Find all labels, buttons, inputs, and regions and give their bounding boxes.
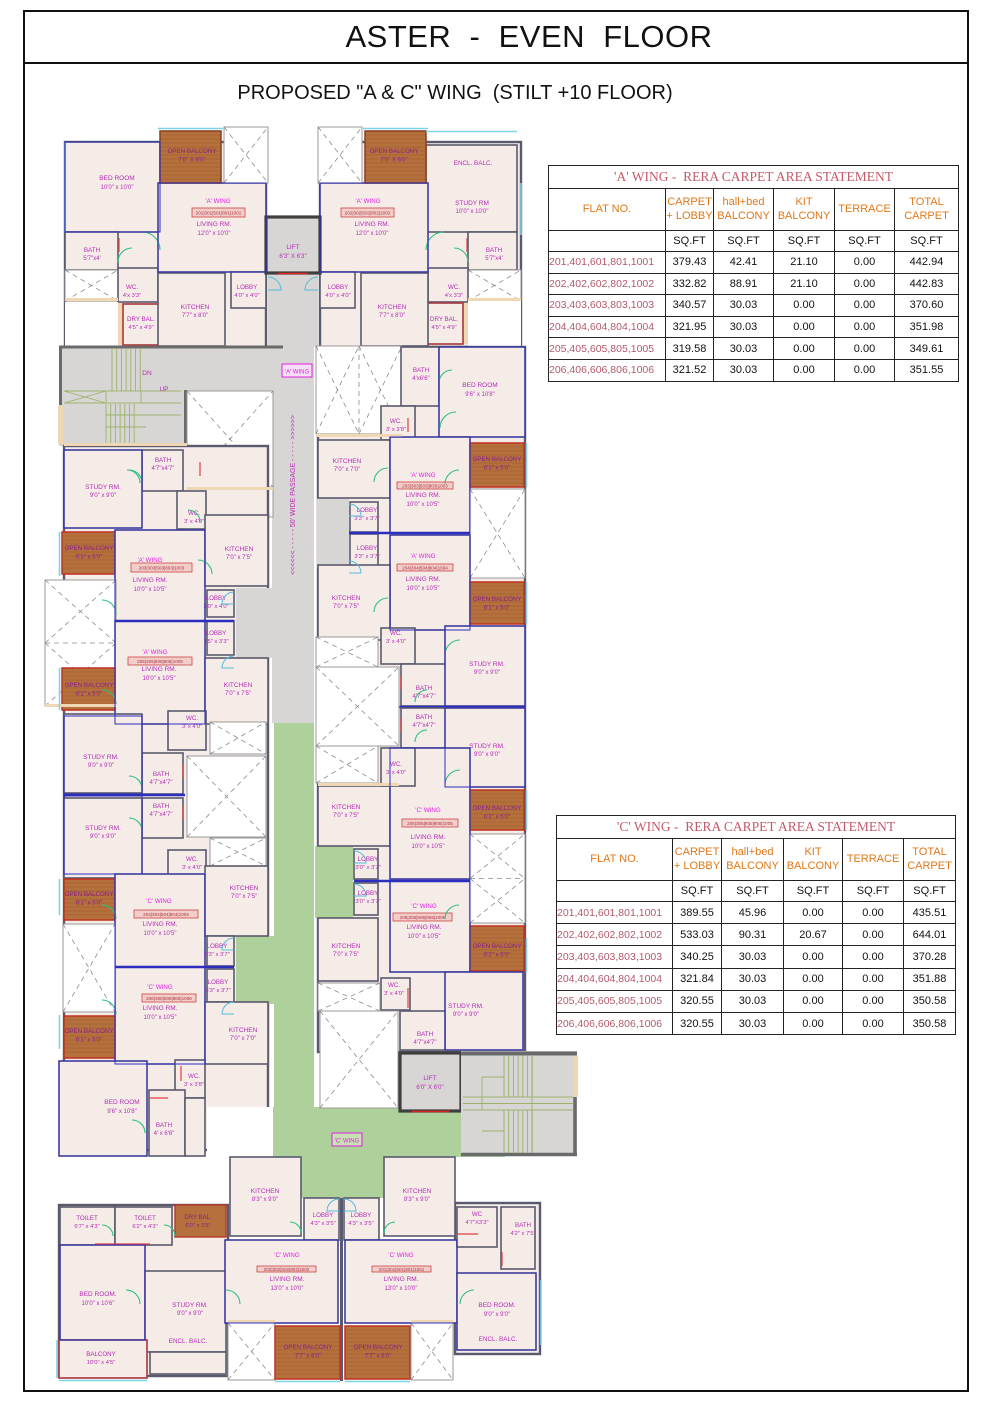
svg-text:3'0" x 4'0": 3'0" x 4'0": [203, 604, 228, 610]
svg-text:3' x 4'0": 3' x 4'0": [386, 770, 406, 776]
svg-text:STUDY RM.: STUDY RM.: [85, 825, 121, 832]
svg-text:WC.: WC.: [390, 418, 402, 425]
svg-text:'C' WING: 'C' WING: [335, 1139, 360, 1145]
svg-text:LOBBY: LOBBY: [207, 943, 228, 950]
svg-text:BED ROOM: BED ROOM: [462, 382, 497, 389]
svg-text:BATH: BATH: [417, 1031, 434, 1038]
svg-text:BED ROOM.: BED ROOM.: [478, 1302, 515, 1309]
svg-text:6'3" X 6'3": 6'3" X 6'3": [279, 254, 306, 260]
svg-text:LOBBY: LOBBY: [358, 856, 379, 863]
svg-text:'A' WING: 'A' WING: [142, 649, 167, 656]
svg-text:LOBBY: LOBBY: [313, 1212, 334, 1219]
svg-text:12'0" x 10'0": 12'0" x 10'0": [198, 231, 231, 237]
svg-text:STUDY RM.: STUDY RM.: [85, 484, 121, 491]
svg-text:3' x 4'0": 3' x 4'0": [184, 519, 204, 525]
svg-text:3'3" x 3'7": 3'3" x 3'7": [354, 554, 379, 560]
svg-text:7'0" x 7'0": 7'0" x 7'0": [334, 467, 360, 473]
svg-text:6'1" x 5'0": 6'1" x 5'0": [484, 605, 510, 611]
svg-text:12'0" x 10'0": 12'0" x 10'0": [356, 231, 389, 237]
svg-text:7'7" x 6'0": 7'7" x 6'0": [365, 1353, 391, 1359]
svg-text:9'0" x 9'0": 9'0" x 9'0": [90, 493, 116, 499]
svg-text:BATH: BATH: [416, 685, 433, 692]
svg-text:BATH: BATH: [84, 247, 101, 254]
svg-text:'C' WING: 'C' WING: [147, 984, 173, 991]
svg-text:BATH: BATH: [155, 457, 172, 464]
svg-text:'C' WING: 'C' WING: [274, 1252, 300, 1259]
svg-text:7'0" x 7'5": 7'0" x 7'5": [333, 813, 359, 819]
svg-text:LIVING RM.: LIVING RM.: [406, 924, 441, 931]
svg-text:LOBBY: LOBBY: [206, 630, 227, 637]
svg-text:OPEN BALCONY: OPEN BALCONY: [65, 682, 114, 689]
svg-text:9'0" x 9'0": 9'0" x 9'0": [177, 1311, 203, 1317]
svg-text:10'0" x 10'5": 10'0" x 10'5": [407, 586, 440, 592]
svg-text:205|305|505|805|1005: 205|305|505|805|1005: [137, 659, 183, 664]
svg-text:'C' WING: 'C' WING: [415, 807, 441, 814]
svg-text:4'2" x 7'5": 4'2" x 7'5": [510, 1231, 535, 1237]
svg-text:10'0" x 10'5": 10'0" x 10'5": [412, 844, 445, 850]
svg-text:ENCL. BALC.: ENCL. BALC.: [169, 1338, 208, 1345]
svg-text:LIVING RM.: LIVING RM.: [410, 834, 445, 841]
svg-text:4'5" x 4'9": 4'5" x 4'9": [128, 325, 153, 331]
svg-text:6'2" x 4'3": 6'2" x 4'3": [132, 1224, 157, 1230]
svg-text:OPEN BALCONY: OPEN BALCONY: [65, 891, 114, 898]
svg-text:LIVING RM.: LIVING RM.: [405, 576, 440, 583]
svg-text:201|301|501|801|1001: 201|301|501|801|1001: [379, 1267, 425, 1272]
svg-text:205|305|505|805|1005: 205|305|505|805|1005: [407, 821, 453, 826]
svg-text:LIVING RM.: LIVING RM.: [196, 221, 231, 228]
svg-text:KITCHEN: KITCHEN: [332, 943, 361, 950]
svg-text:10'0" x 10'5": 10'0" x 10'5": [143, 676, 176, 682]
svg-text:10'0" x 10'5": 10'0" x 10'5": [144, 931, 177, 937]
svg-text:203|303|503|803|1003: 203|303|503|803|1003: [402, 483, 448, 488]
svg-text:3' x 3'8": 3' x 3'8": [184, 1082, 204, 1088]
svg-text:OPEN BALCONY: OPEN BALCONY: [168, 148, 217, 155]
svg-text:10'0" x 10'5": 10'0" x 10'5": [144, 1015, 177, 1021]
svg-text:LIVING RM.: LIVING RM.: [142, 921, 177, 928]
svg-text:DN: DN: [142, 370, 152, 377]
svg-text:5'7"x4': 5'7"x4': [83, 256, 100, 262]
svg-text:3' x 4'0": 3' x 4'0": [384, 991, 404, 997]
svg-text:4'7"x4'7": 4'7"x4'7": [152, 466, 175, 472]
svg-text:7'0" X 6'0": 7'0" X 6'0": [178, 157, 205, 163]
svg-text:9'0" x 9'0": 9'0" x 9'0": [90, 834, 116, 840]
svg-text:STUDY RM.: STUDY RM.: [469, 743, 505, 750]
svg-text:13'0" x 10'0": 13'0" x 10'0": [271, 1286, 304, 1292]
svg-text:WC.: WC.: [390, 630, 402, 637]
svg-text:3'0" x 3'7": 3'0" x 3'7": [355, 865, 380, 871]
svg-text:10'0" x 10'5": 10'0" x 10'5": [408, 934, 441, 940]
svg-text:3'3" x 3'7": 3'3" x 3'7": [204, 952, 229, 958]
svg-text:7'0" x 7'5": 7'0" x 7'5": [226, 555, 252, 561]
svg-text:3'0" x 3'7": 3'0" x 3'7": [355, 899, 380, 905]
svg-text:9'0" x 9'0": 9'0" x 9'0": [484, 1312, 510, 1318]
svg-text:4' x 6'6": 4' x 6'6": [154, 1131, 175, 1137]
svg-text:7'7" x 8'0": 7'7" x 8'0": [379, 313, 405, 319]
svg-text:OPEN BALCONY: OPEN BALCONY: [473, 456, 522, 463]
svg-text:6'1" x 5'0": 6'1" x 5'0": [76, 554, 102, 560]
svg-text:KITCHEN: KITCHEN: [332, 595, 361, 602]
svg-text:10'0" x 10'5": 10'0" x 10'5": [407, 502, 440, 508]
svg-text:3' x 3'8": 3' x 3'8": [386, 427, 406, 433]
svg-text:BATH: BATH: [515, 1222, 531, 1229]
svg-text:ENCL. BALC.: ENCL. BALC.: [454, 160, 493, 167]
svg-text:BATH: BATH: [416, 714, 433, 721]
svg-text:BATH: BATH: [156, 1122, 173, 1129]
svg-text:204|304|504|804|1004: 204|304|504|804|1004: [402, 565, 448, 570]
svg-text:4'7"x4'7": 4'7"x4'7": [413, 723, 436, 729]
svg-text:6'2" x 5'0": 6'2" x 5'0": [484, 814, 510, 820]
svg-text:3'3" x 3'7": 3'3" x 3'7": [205, 988, 230, 994]
svg-text:OPEN BALCONY: OPEN BALCONY: [65, 545, 114, 552]
svg-text:7'7" x 8'0": 7'7" x 8'0": [182, 313, 208, 319]
svg-text:9'0" x 9'0": 9'0" x 9'0": [474, 670, 500, 676]
svg-text:7'7" x 6'0": 7'7" x 6'0": [295, 1353, 321, 1359]
svg-text:DRY BAL.: DRY BAL.: [184, 1215, 211, 1221]
svg-text:6'2" x 5'0": 6'2" x 5'0": [484, 952, 510, 958]
svg-text:LOBBY: LOBBY: [351, 1212, 372, 1219]
svg-text:STUDY RM.: STUDY RM.: [83, 754, 119, 761]
svg-text:'A' WING: 'A' WING: [285, 370, 310, 376]
svg-text:WC.: WC.: [186, 715, 198, 722]
svg-text:OPEN BALCONY: OPEN BALCONY: [473, 805, 522, 812]
svg-text:OPEN BALCONY: OPEN BALCONY: [473, 943, 522, 950]
svg-text:TOILET: TOILET: [76, 1215, 98, 1222]
svg-text:STUDY RM: STUDY RM: [455, 200, 489, 207]
svg-text:9'6" x 10'8": 9'6" x 10'8": [107, 1109, 137, 1115]
svg-text:201|301|501|801|1001: 201|301|501|801|1001: [196, 210, 242, 215]
svg-text:7'0" x 7'5": 7'0" x 7'5": [333, 952, 359, 958]
svg-text:LIVING RM.: LIVING RM.: [132, 577, 167, 584]
svg-text:KITCHEN: KITCHEN: [332, 804, 361, 811]
svg-text:202|302|502|802|1002: 202|302|502|802|1002: [345, 210, 391, 215]
svg-text:LOBBY: LOBBY: [237, 284, 258, 291]
svg-text:LOBBY: LOBBY: [357, 545, 378, 552]
svg-text:OPEN BALCONY: OPEN BALCONY: [284, 1344, 333, 1351]
svg-text:6'7" x 4'3": 6'7" x 4'3": [74, 1224, 99, 1230]
svg-text:LIVING RM.: LIVING RM.: [354, 221, 389, 228]
svg-text:7'0" x 7'5": 7'0" x 7'5": [231, 894, 257, 900]
svg-text:DRY BAL.: DRY BAL.: [430, 316, 458, 323]
svg-text:KITCHEN: KITCHEN: [251, 1188, 280, 1195]
svg-text:WC: WC: [472, 1211, 483, 1218]
svg-text:8'3" x 9'0": 8'3" x 9'0": [404, 1197, 430, 1203]
svg-text:4'7"x4'7": 4'7"x4'7": [150, 812, 173, 818]
svg-text:10'0" x 10'5": 10'0" x 10'5": [134, 587, 167, 593]
svg-text:STUDY RM.: STUDY RM.: [469, 661, 505, 668]
svg-text:'A' WING: 'A' WING: [205, 198, 230, 205]
svg-text:8'3" x 9'0": 8'3" x 9'0": [252, 1197, 278, 1203]
svg-text:9'0" x 9'0": 9'0" x 9'0": [88, 763, 114, 769]
svg-text:OPEN BALCONY: OPEN BALCONY: [473, 596, 522, 603]
svg-text:206|306|506|806|1006: 206|306|506|806|1006: [146, 996, 192, 1001]
svg-text:'A' WING: 'A' WING: [410, 472, 435, 479]
svg-text:4'5" x 4'9": 4'5" x 4'9": [431, 325, 456, 331]
svg-text:6'1" x 5'0": 6'1" x 5'0": [76, 1037, 102, 1043]
svg-text:WC.: WC.: [186, 856, 198, 863]
svg-text:203|303|503|803|1003: 203|303|503|803|1003: [139, 565, 185, 570]
svg-text:10'0" x 10'0": 10'0" x 10'0": [456, 209, 489, 215]
svg-text:LIFT: LIFT: [423, 1075, 436, 1082]
svg-text:KITCHEN: KITCHEN: [181, 304, 210, 311]
svg-text:3' x 4'0": 3' x 4'0": [182, 865, 202, 871]
svg-text:STUDY RM.: STUDY RM.: [448, 1003, 484, 1010]
svg-text:DRY BAL.: DRY BAL.: [127, 316, 155, 323]
svg-text:6'1" x 5'0": 6'1" x 5'0": [76, 900, 102, 906]
svg-text:BATH: BATH: [413, 367, 430, 374]
svg-text:4'3" x 3'5": 4'3" x 3'5": [310, 1221, 335, 1227]
svg-text:10'0" x 4'5": 10'0" x 4'5": [87, 1360, 116, 1366]
svg-text:3'3" x 3'7": 3'3" x 3'7": [354, 516, 379, 522]
svg-text:KITCHEN: KITCHEN: [229, 1027, 258, 1034]
svg-text:3' x 4'0": 3' x 4'0": [386, 639, 406, 645]
svg-text:WC.: WC.: [388, 982, 400, 989]
svg-text:BALCONY: BALCONY: [86, 1351, 116, 1358]
svg-text:6'0" x 3'5": 6'0" x 3'5": [185, 1223, 210, 1229]
svg-text:3' x 4'0": 3' x 4'0": [182, 724, 202, 730]
svg-text:WC.: WC.: [188, 1073, 200, 1080]
svg-text:STUDY RM.: STUDY RM.: [172, 1302, 208, 1309]
svg-text:UP: UP: [159, 386, 168, 393]
svg-text:LIFT: LIFT: [286, 244, 299, 251]
svg-text:LIVING RM.: LIVING RM.: [383, 1276, 418, 1283]
svg-text:4'x 3'3": 4'x 3'3": [445, 293, 463, 299]
svg-text:7'0" x 7'5": 7'0" x 7'5": [333, 604, 359, 610]
svg-text:OPEN BALCONY: OPEN BALCONY: [370, 148, 419, 155]
svg-text:WC.: WC.: [448, 284, 460, 291]
svg-text:KITCHEN: KITCHEN: [224, 682, 253, 689]
svg-text:BATH: BATH: [153, 803, 170, 810]
svg-text:BED ROOM.: BED ROOM.: [79, 1291, 116, 1298]
svg-text:6'0" X 6'0": 6'0" X 6'0": [416, 1085, 443, 1091]
svg-text:BATH: BATH: [486, 247, 503, 254]
svg-text:4'0" x 4'0": 4'0" x 4'0": [234, 293, 259, 299]
svg-text:BED ROOM: BED ROOM: [104, 1099, 139, 1106]
svg-text:LIVING RM.: LIVING RM.: [141, 666, 176, 673]
svg-text:KITCHEN: KITCHEN: [225, 546, 254, 553]
svg-text:LIVING RM.: LIVING RM.: [142, 1005, 177, 1012]
svg-text:7'0" x 7'5": 7'0" x 7'5": [225, 691, 251, 697]
svg-text:WC.: WC.: [126, 284, 138, 291]
svg-text:TOILET: TOILET: [134, 1215, 156, 1222]
svg-text:206|306|506|806|1006: 206|306|506|806|1006: [400, 915, 446, 920]
svg-text:BATH: BATH: [153, 771, 170, 778]
svg-text:204|304|504|804|1004: 204|304|504|804|1004: [143, 912, 189, 917]
svg-text:7'0" x 7'0": 7'0" x 7'0": [230, 1036, 256, 1042]
svg-text:'C' WING: 'C' WING: [388, 1252, 414, 1259]
svg-text:BED ROOM: BED ROOM: [99, 175, 134, 182]
svg-text:4'7"X3'3": 4'7"X3'3": [465, 1220, 488, 1226]
svg-text:4'7"x4'7": 4'7"x4'7": [414, 1040, 437, 1046]
svg-text:6'1" x 5'0": 6'1" x 5'0": [76, 691, 102, 697]
svg-text:10'0" x 10'6": 10'0" x 10'6": [82, 1301, 115, 1307]
svg-text:'C' WING: 'C' WING: [411, 903, 437, 910]
svg-text:'A' WING: 'A' WING: [410, 553, 435, 560]
svg-text:4'0" x 4'0": 4'0" x 4'0": [325, 293, 350, 299]
svg-text:10'0" x 10'0": 10'0" x 10'0": [101, 185, 134, 191]
svg-text:'A' WING: 'A' WING: [355, 198, 380, 205]
svg-text:4'x6'6": 4'x6'6": [412, 376, 429, 382]
svg-text:9'0" x 9'0": 9'0" x 9'0": [453, 1012, 479, 1018]
svg-text:5'7"x4': 5'7"x4': [485, 256, 502, 262]
svg-text:KITCHEN: KITCHEN: [403, 1188, 432, 1195]
svg-text:9'0" x 9'0": 9'0" x 9'0": [474, 752, 500, 758]
svg-text:4'7"x4'7": 4'7"x4'7": [150, 780, 173, 786]
svg-text:LOBBY: LOBBY: [328, 284, 349, 291]
svg-text:'C' WING: 'C' WING: [146, 898, 172, 905]
svg-text:4'3" x 3'5": 4'3" x 3'5": [348, 1221, 373, 1227]
svg-text:KITCHEN: KITCHEN: [378, 304, 407, 311]
svg-text:202|302|502|802|1002: 202|302|502|802|1002: [264, 1267, 310, 1272]
svg-text:ENCL. BALC.: ENCL. BALC.: [479, 1336, 518, 1343]
svg-text:LIVING RM.: LIVING RM.: [269, 1276, 304, 1283]
svg-text:7'0" X 6'0": 7'0" X 6'0": [380, 157, 407, 163]
svg-text:3'5" x 3'3": 3'5" x 3'3": [203, 639, 228, 645]
svg-text:LIVING RM.: LIVING RM.: [405, 492, 440, 499]
svg-text:OPEN BALCONY: OPEN BALCONY: [65, 1028, 114, 1035]
svg-text:9'6" x 10'8": 9'6" x 10'8": [465, 392, 495, 398]
svg-text:KITCHEN: KITCHEN: [333, 458, 362, 465]
svg-text:13'0" x 10'0": 13'0" x 10'0": [385, 1286, 418, 1292]
svg-text:WC.: WC.: [390, 761, 402, 768]
svg-text:6'1" x 5'0": 6'1" x 5'0": [484, 465, 510, 471]
svg-text:KITCHEN: KITCHEN: [230, 885, 259, 892]
svg-text:<<<<<< - - - - - 50' WIDE PA: <<<<<< - - - - - 50' WIDE PASSAGE - - - …: [290, 415, 297, 575]
svg-text:4'x 3'3": 4'x 3'3": [123, 293, 141, 299]
svg-text:OPEN BALCONY: OPEN BALCONY: [354, 1344, 403, 1351]
svg-text:LOBBY: LOBBY: [208, 979, 229, 986]
